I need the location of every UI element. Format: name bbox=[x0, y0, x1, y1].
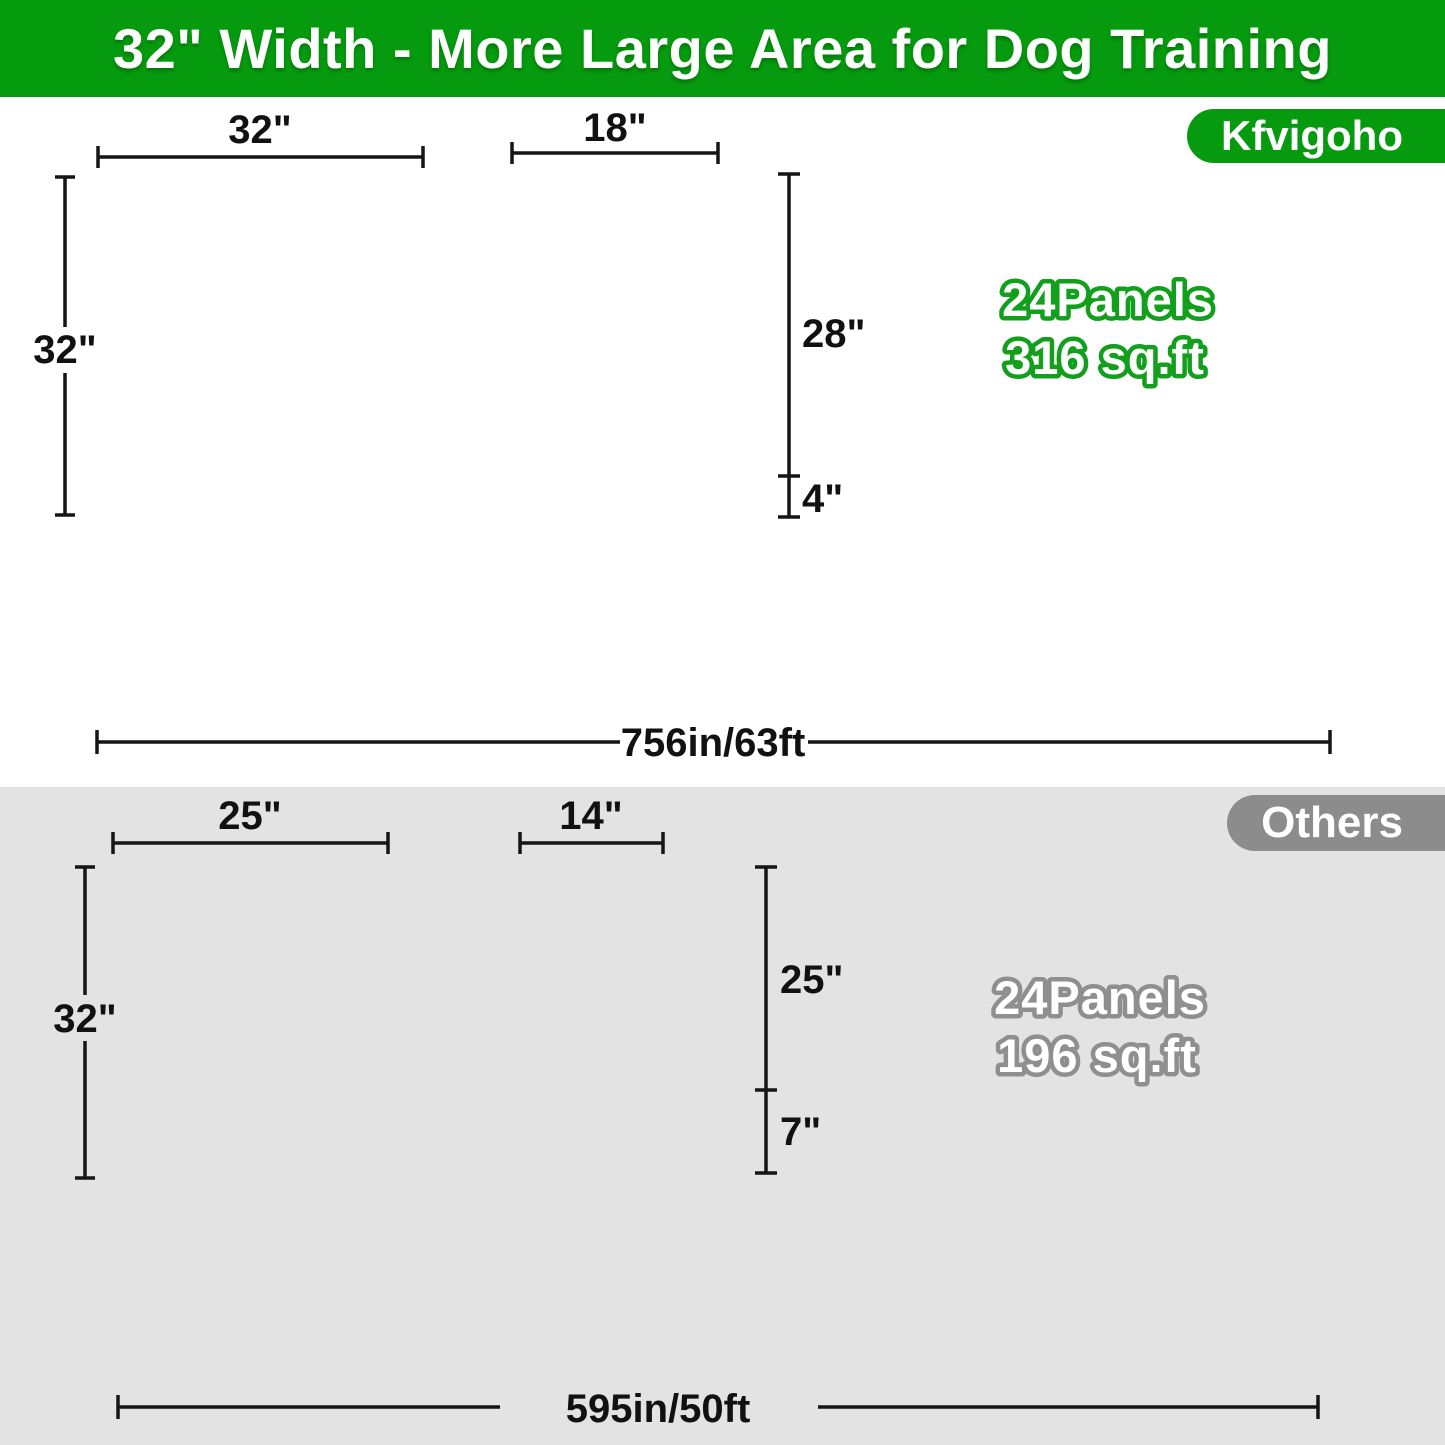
product-infographic: 32" Width - More Large Area for Dog Trai… bbox=[0, 0, 1445, 1445]
brand-gate-width-label: 18" bbox=[583, 106, 646, 150]
brand-gate-height-label: 28" bbox=[802, 312, 865, 356]
others-gate-bottom-label: 7" bbox=[780, 1110, 821, 1154]
others-badge: Others bbox=[1227, 795, 1445, 851]
others-badge-label: Others bbox=[1261, 798, 1403, 848]
brand-badge: Kfvigoho bbox=[1187, 109, 1445, 163]
others-circular-pen-figure: 24Panels 196 sq.ft bbox=[850, 882, 1445, 1212]
brand-panel-diagram: 32" 32" bbox=[20, 97, 490, 527]
brand-pen-panels-label: 24Panels bbox=[1002, 273, 1214, 326]
brand-gate-diagram: 18" 28" 4" bbox=[440, 97, 920, 527]
others-pen-area-label: 196 sq.ft bbox=[997, 1029, 1197, 1082]
brand-pen-area-label: 316 sq.ft bbox=[1005, 331, 1205, 384]
brand-row-length-label: 756in/63ft bbox=[621, 721, 806, 765]
others-panel-width-label: 25" bbox=[218, 794, 281, 838]
others-section: Others 25" 32" 14" 25" 7" bbox=[0, 787, 1445, 1445]
others-panel-height-label: 32" bbox=[53, 997, 116, 1041]
others-gate-width-label: 14" bbox=[559, 794, 622, 838]
banner: 32" Width - More Large Area for Dog Trai… bbox=[0, 0, 1445, 97]
others-row-length-label: 595in/50ft bbox=[566, 1387, 751, 1431]
brand-section: Kfvigoho 32" 32" 18" 28" 4 bbox=[0, 97, 1445, 787]
brand-circular-pen-figure: 24Panels 316 sq.ft bbox=[860, 182, 1445, 532]
others-gate-height-label: 25" bbox=[780, 958, 843, 1002]
others-pen-panels-label: 24Panels bbox=[994, 971, 1206, 1024]
brand-panel-height-label: 32" bbox=[33, 328, 96, 372]
brand-badge-label: Kfvigoho bbox=[1221, 112, 1403, 160]
others-gate-diagram: 14" 25" 7" bbox=[420, 787, 860, 1207]
others-row-figure: 595in/50ft bbox=[80, 1177, 1410, 1445]
brand-row-figure: 756in/63ft bbox=[60, 502, 1390, 787]
brand-panel-width-label: 32" bbox=[228, 108, 291, 152]
banner-title: 32" Width - More Large Area for Dog Trai… bbox=[113, 16, 1332, 81]
